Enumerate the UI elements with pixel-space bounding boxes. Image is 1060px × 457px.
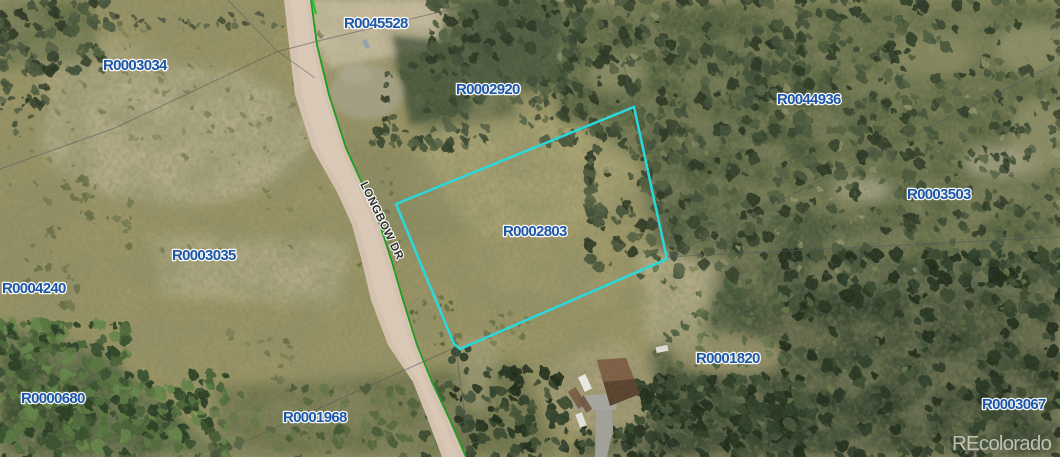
svg-text:R0045528: R0045528 xyxy=(344,15,408,32)
svg-text:R0002920: R0002920 xyxy=(456,81,520,98)
svg-text:R0003503: R0003503 xyxy=(907,186,971,203)
svg-text:R0000680: R0000680 xyxy=(21,390,85,407)
svg-text:REcolorado: REcolorado xyxy=(952,432,1052,455)
svg-text:R0003035: R0003035 xyxy=(172,247,236,264)
svg-text:R0001820: R0001820 xyxy=(696,350,760,367)
svg-text:R0001968: R0001968 xyxy=(283,409,347,426)
svg-text:R0004240: R0004240 xyxy=(2,280,66,297)
svg-text:R0003034: R0003034 xyxy=(103,57,168,74)
svg-text:R0002803: R0002803 xyxy=(503,223,567,240)
svg-text:R0003067: R0003067 xyxy=(982,396,1046,413)
svg-text:R0044936: R0044936 xyxy=(777,91,841,108)
